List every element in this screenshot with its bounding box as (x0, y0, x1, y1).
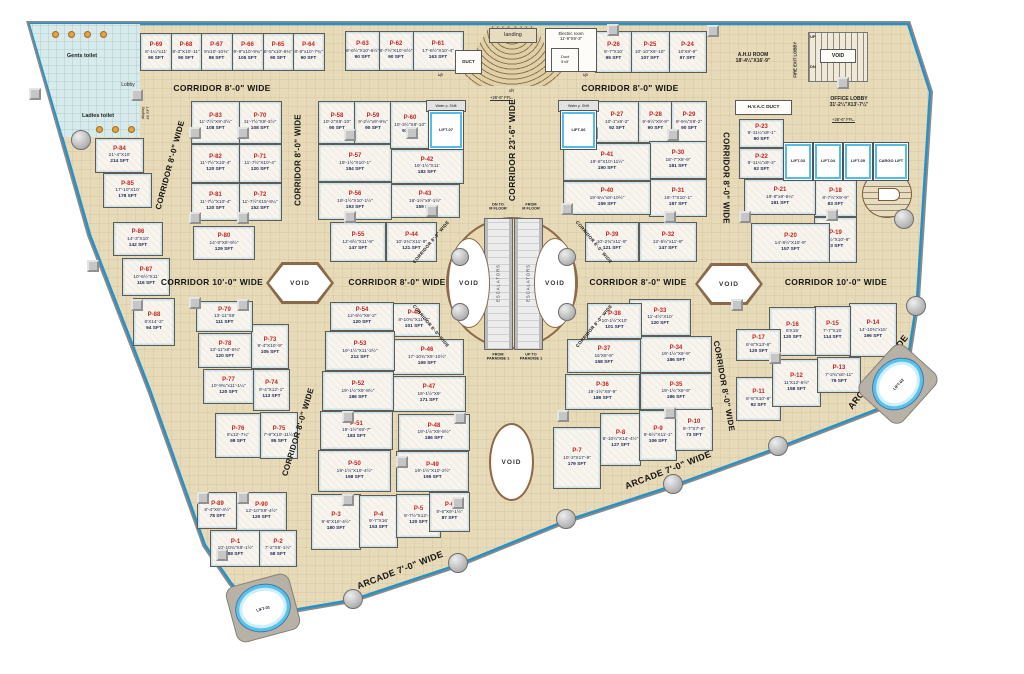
void-label: VOID (719, 281, 739, 288)
column-icon (237, 492, 249, 504)
unit-P-61-id: P-61 (432, 41, 445, 49)
unit-P-53-id: P-53 (354, 341, 367, 349)
unit-P-1-sft: 88 SFT (228, 552, 244, 558)
void-label: VOID (459, 280, 479, 287)
unit-P-78-sft: 120 SFT (216, 354, 234, 360)
unit-P-26-sft: 95 SFT (606, 56, 622, 62)
edge-column-icon (556, 509, 576, 529)
unit-P-71-sft: 120 SFT (251, 167, 269, 173)
unit-P-66-sft: 105 SFT (238, 56, 256, 62)
toilet-fixture-icon (112, 126, 119, 133)
escalator-from-paradise-label: FROM PARADISE 1 (480, 353, 516, 362)
escalator-dn-to-m-floor-label: DN TO M FLOOR (480, 203, 516, 212)
unit-P-58-sft: 90 SFT (329, 126, 345, 132)
toilet-fixture-icon (68, 31, 75, 38)
column-icon (344, 129, 356, 141)
unit-P-33-sft: 120 SFT (651, 321, 669, 327)
unit-P-69-id: P-69 (150, 42, 163, 50)
unit-P-59-sft: 90 SFT (365, 126, 381, 132)
unit-P-20: P-2014'-8½"X10'-9"157 SFT (751, 223, 830, 263)
stair-up-label: UP (810, 34, 816, 39)
unit-P-35-sft: 186 SFT (667, 395, 685, 401)
unit-P-68-id: P-68 (180, 42, 193, 50)
landing-label: landing (489, 28, 537, 43)
unit-P-51: P-5119'-1½"X9'-7"183 SFT (320, 411, 393, 450)
unit-P-23-sft: 90 SFT (754, 137, 770, 143)
unit-P-63-sft: 90 SFT (355, 55, 371, 61)
unit-P-56-id: P-56 (349, 191, 362, 199)
column-icon (29, 88, 41, 100)
unit-P-54: P-5412'-5½"X9'-2"120 SFT (330, 302, 394, 331)
unit-P-32-sft: 147 SFT (659, 246, 677, 252)
unit-P-27-sft: 92 SFT (609, 126, 625, 132)
unit-P-46: P-4617'-10¾"X9'-10½"169 SFT (390, 339, 464, 375)
lobby-label: Lobby (113, 82, 143, 88)
unit-P-45-sft: 101 SFT (405, 324, 423, 330)
unit-P-29-sft: 90 SFT (681, 126, 697, 132)
duct-box: DUCT (455, 50, 482, 74)
unit-P-22-sft: 92 SFT (754, 167, 770, 173)
unit-P-18-sft: 83 SFT (828, 202, 844, 208)
unit-P-76-sft: 98 SFT (230, 439, 246, 445)
unit-P-84-sft: 214 SFT (110, 159, 128, 165)
stair-dn-label: DN (810, 64, 816, 69)
unit-P-47-sft: 171 SFT (420, 398, 438, 404)
unit-P-38-sft: 101 SFT (605, 325, 623, 331)
unit-P-63: P-638'-6½"X10'-6½"90 SFT (345, 31, 380, 71)
unit-P-73: P-739'-4"X10'-9"105 SFT (251, 324, 289, 369)
column-icon (344, 211, 356, 223)
unit-P-13-id: P-13 (833, 365, 846, 373)
unit-P-12: P-1211'X12'-8½"158 SFT (772, 359, 821, 407)
corridor-label: CORRIDOR 8'-0" WIDE (722, 132, 731, 224)
unit-P-21: P-2118'-8"x9'-8¼"181 SFT (744, 179, 816, 215)
unit-P-82: P-8211'-7½"X10'-4"120 SFT (191, 144, 240, 183)
unit-P-30-sft: 181 SFT (669, 164, 687, 170)
edge-column-icon (343, 589, 363, 609)
unit-P-55-sft: 147 SFT (349, 246, 367, 252)
corridor-label: CORRIDOR 8'-0" WIDE (294, 114, 303, 206)
column-icon (739, 211, 751, 223)
unit-P-34: P-3419'-1½"X9'-9"186 SFT (640, 336, 712, 373)
stair-void-label: VOID (820, 49, 856, 63)
unit-P-74-sft: 113 SFT (262, 394, 280, 400)
unit-P-86-id: P-86 (132, 229, 145, 237)
unit-P-40-sft: 159 SFT (598, 202, 616, 208)
unit-P-37-id: P-37 (598, 346, 611, 354)
column-icon (731, 299, 743, 311)
unit-P-74: P-749'-4"X12'-1"113 SFT (253, 369, 290, 411)
unit-P-57: P-5719'-1½"X10'-1"184 SFT (318, 144, 392, 182)
lift: LIFT-05 (843, 142, 873, 181)
column-icon (237, 212, 249, 224)
column-icon (87, 260, 99, 272)
unit-P-19-id: P-19 (829, 230, 842, 238)
column-icon (216, 549, 228, 561)
gents-toilet-label: Gents toilet (50, 53, 114, 60)
unit-P-40: P-4019'-5¼"x8'-10½"159 SFT (563, 181, 651, 215)
lift: LIFT-07 (428, 110, 464, 150)
unit-P-62-sft: 90 SFT (388, 55, 404, 61)
unit-P-15-id: P-15 (826, 321, 839, 329)
lift: CARGO LIFT (873, 142, 909, 181)
column-icon (667, 129, 679, 141)
corridor-label: CORRIDOR 10'-0" WIDE (161, 277, 263, 287)
unit-P-67: P-679'x10'-10¾"98 SFT (200, 33, 233, 71)
unit-P-57-sft: 184 SFT (346, 167, 364, 173)
escalator-up-to-paradise-label: UP TO PARADISE 1 (513, 353, 549, 362)
corridor-label: CORRIDOR 8'-0" WIDE (173, 83, 270, 93)
unit-P-30: P-3018'-7"X9'-9"181 SFT (649, 141, 707, 179)
unit-P-23: P-239'-11¼"x9'-1"90 SFT (739, 119, 784, 148)
corridor-label: CORRIDOR 8'-0" WIDE (581, 83, 678, 93)
unit-P-36: P-3619'-1½"X9'-9"186 SFT (565, 374, 640, 410)
void-ellipse: VOID (489, 423, 534, 501)
display-label: display 46 SFT (140, 98, 150, 128)
escalators-label: ESCALATORS (496, 264, 501, 302)
unit-P-36-id: P-36 (596, 382, 609, 390)
corridor-label: CORRIDOR 8'-0" WIDE (348, 277, 445, 287)
unit-P-9-sft: 106 SFT (649, 439, 667, 445)
unit-P-55-id: P-55 (352, 232, 365, 240)
unit-P-88-id: P-88 (148, 312, 161, 320)
void-hexagon-inner: VOID (269, 265, 331, 301)
unit-P-32-id: P-32 (662, 232, 675, 240)
column-icon (607, 24, 619, 36)
unit-P-42-sft: 182 SFT (418, 170, 436, 176)
unit-P-85-sft: 178 SFT (118, 194, 136, 200)
unit-P-52-sft: 186 SFT (349, 395, 367, 401)
void-label: VOID (545, 280, 565, 287)
column-icon (131, 89, 143, 101)
corridor-label: CORRIDOR 23'-6" WIDE (507, 99, 517, 201)
unit-P-36-sft: 186 SFT (593, 396, 611, 402)
column-icon (707, 25, 719, 37)
unit-P-43-id: P-43 (419, 191, 432, 199)
unit-P-8-sft: 127 SFT (611, 443, 629, 449)
unit-P-72-id: P-72 (254, 192, 267, 200)
unit-P-24-sft: 97 SFT (680, 56, 696, 62)
unit-P-81-sft: 120 SFT (206, 206, 224, 212)
unit-P-4: P-49'-7"X16'153 SFT (359, 495, 398, 548)
unit-P-53: P-5319'-1½"X11'-2½"212 SFT (325, 331, 395, 371)
unit-P-55: P-5512'-6½"X11'-9"147 SFT (330, 222, 386, 262)
unit-P-62-id: P-62 (390, 41, 403, 49)
unit-P-64: P-648'-6"x10'-7¾"90 SFT (292, 33, 325, 71)
unit-P-31-sft: 187 SFT (669, 202, 687, 208)
unit-P-17-id: P-17 (752, 335, 765, 343)
column-icon (131, 299, 143, 311)
unit-P-21-id: P-21 (774, 187, 787, 195)
unit-P-39-id: P-39 (606, 232, 619, 240)
unit-P-10: P-109'-7"X7'-8"73 SFT (675, 407, 713, 451)
column-icon (454, 412, 466, 424)
unit-P-13-sft: 76 SFT (831, 379, 847, 385)
floor-plan: Gents toilet Ladies toilet Lobby display… (0, 0, 1024, 674)
unit-P-50-sft: 198 SFT (345, 475, 363, 481)
unit-P-24-id: P-24 (681, 42, 694, 50)
unit-P-3-sft: 180 SFT (327, 526, 345, 532)
unit-P-34-sft: 186 SFT (667, 358, 685, 364)
fire-exit-lobby-label: FIRE EXIT LOBBY (792, 44, 797, 78)
unit-P-37-sft: 158 SFT (595, 360, 613, 366)
column-icon (342, 494, 354, 506)
unit-P-5-id: P-5 (414, 506, 423, 514)
ffl-marker: +26'-6" FFL. (490, 95, 513, 101)
corridor-label: CORRIDOR 8'-0" WIDE (589, 277, 686, 287)
stair-up-label: up (583, 72, 588, 77)
unit-P-28-sft: 90 SFT (648, 126, 664, 132)
unit-P-87-sft: 116 SFT (137, 281, 155, 287)
toilet-fixture-icon (52, 31, 59, 38)
unit-P-31-id: P-31 (672, 188, 685, 196)
edge-column-icon (906, 296, 926, 316)
lift: LIFT-03 (783, 142, 813, 181)
unit-P-68: P-688'-3"X10'-11"90 SFT (170, 33, 202, 71)
unit-P-7-id: P-7 (572, 448, 581, 456)
unit-P-82-sft: 120 SFT (206, 167, 224, 173)
edge-column-icon (663, 474, 683, 494)
unit-P-83-sft: 108 SFT (206, 126, 224, 132)
unit-P-7: P-710'-3"X17'-9"179 SFT (553, 427, 601, 489)
column-icon (426, 205, 438, 217)
unit-P-35: P-3519'-1½"X9'-9"186 SFT (640, 373, 712, 410)
column-icon (557, 410, 569, 422)
column-icon (396, 456, 408, 468)
unit-P-28-id: P-28 (649, 112, 662, 120)
unit-P-26-id: P-26 (607, 42, 620, 50)
unit-P-30-id: P-30 (672, 150, 685, 158)
escalator-from-m-floor-label: FROM M FLOOR (513, 203, 549, 212)
unit-P-69: P-698'-1¼"x11'90 SFT (140, 33, 172, 71)
unit-P-41-sft: 190 SFT (598, 166, 616, 172)
unit-P-69-sft: 90 SFT (148, 56, 164, 62)
unit-P-10-id: P-10 (688, 419, 701, 427)
ahu-room-label: A.H.U ROOM 18'-4¼"X16'-9" (712, 52, 794, 65)
unit-P-18-id: P-18 (829, 188, 842, 196)
unit-P-46-id: P-46 (421, 347, 434, 355)
unit-P-68-sft: 90 SFT (178, 56, 194, 62)
unit-P-22: P-229'-11¼"x9'-3"92 SFT (739, 148, 784, 179)
unit-P-2-sft: 58 SFT (270, 552, 286, 558)
electric-duct-box: Duct 5'x5' (551, 48, 579, 72)
spiral-staircase-core (878, 188, 900, 201)
unit-P-76: P-768'x12'-7¼"98 SFT (215, 413, 261, 458)
unit-P-59: P-599'-2½"x9'-9¾"90 SFT (354, 101, 392, 144)
rotunda-column-icon (451, 303, 469, 321)
unit-P-88-sft: 94 SFT (146, 326, 162, 332)
hvac-duct-box: H.V.A.C DUCT (735, 100, 792, 115)
unit-P-79-sft: 111 SFT (216, 320, 234, 326)
unit-P-29-id: P-29 (683, 112, 696, 120)
void-hexagon-inner: VOID (698, 266, 760, 302)
unit-P-86-sft: 142 SFT (129, 243, 147, 249)
unit-P-74-id: P-74 (265, 380, 278, 388)
unit-P-80-id: P-80 (218, 233, 231, 241)
unit-P-73-sft: 105 SFT (261, 350, 279, 356)
unit-P-54-sft: 120 SFT (353, 320, 371, 326)
unit-P-65: P-658'-5"x10'-8¾"90 SFT (262, 33, 294, 71)
lift: LIFT-04 (813, 142, 843, 181)
unit-P-20-sft: 157 SFT (781, 247, 799, 253)
unit-P-4-sft: 153 SFT (369, 525, 387, 531)
unit-P-49-sft: 195 SFT (423, 475, 441, 481)
unit-P-90-sft: 120 SFT (252, 515, 270, 521)
office-lobby-label: OFFICE LOBBY 31'-2¼"X13'-7¼" (806, 96, 892, 109)
unit-P-48-sft: 186 SFT (425, 436, 443, 442)
escalators-label: ESCALATORS (526, 264, 531, 302)
unit-P-66: P-669'-9"x10'-9¾"105 SFT (231, 33, 264, 71)
stair-up-label: up (438, 72, 443, 77)
column-icon (406, 127, 418, 139)
unit-P-11-sft: 92 SFT (751, 403, 767, 409)
edge-column-icon (768, 436, 788, 456)
unit-P-67-id: P-67 (210, 42, 223, 50)
unit-P-66-id: P-66 (241, 42, 254, 50)
unit-P-17-sft: 120 SFT (749, 349, 767, 355)
unit-P-10-sft: 73 SFT (686, 433, 702, 439)
toilet-fixture-icon (100, 31, 107, 38)
unit-P-85: P-8517'-10"X10'178 SFT (103, 173, 152, 208)
unit-P-6-sft: 87 SFT (442, 516, 458, 522)
unit-P-56-sft: 193 SFT (346, 205, 364, 211)
unit-P-71: P-7111'-7½"X10'-4"120 SFT (238, 144, 282, 183)
unit-P-20-id: P-20 (784, 233, 797, 241)
unit-P-77: P-7710'-9¾"x11'-1¼"120 SFT (203, 369, 254, 404)
rotunda-column-icon (451, 248, 469, 266)
unit-P-16-sft: 120 SFT (783, 335, 801, 341)
unit-P-64-sft: 90 SFT (301, 56, 317, 62)
toilet-fixture-icon (128, 126, 135, 133)
unit-P-57-id: P-57 (349, 153, 362, 161)
unit-P-32: P-3212'-6½"x11'-9"147 SFT (639, 222, 697, 262)
unit-P-21-sft: 181 SFT (771, 201, 789, 207)
column-icon (197, 492, 209, 504)
unit-P-47-id: P-47 (423, 384, 436, 392)
unit-P-12-sft: 158 SFT (787, 387, 805, 393)
unit-P-51-sft: 183 SFT (347, 434, 365, 440)
column-icon (561, 203, 573, 215)
edge-column-icon (448, 553, 468, 573)
unit-P-11-id: P-11 (752, 389, 764, 397)
unit-P-60-id: P-60 (404, 115, 417, 123)
unit-P-52: P-5219'-1½"X9'-8½"186 SFT (322, 371, 394, 411)
column-icon (452, 497, 464, 509)
unit-P-78: P-7813'-11"x8'-8¾"120 SFT (198, 333, 252, 368)
unit-P-72-sft: 152 SFT (251, 206, 269, 212)
lift: LIFT-06 (560, 110, 597, 150)
column-icon (189, 127, 201, 139)
rotunda-column-icon (558, 248, 576, 266)
unit-P-14-sft: 196 SFT (864, 334, 882, 340)
unit-P-65-sft: 90 SFT (270, 56, 286, 62)
unit-P-81-id: P-81 (209, 192, 222, 200)
unit-P-65-id: P-65 (272, 42, 285, 50)
unit-P-26: P-269'-7"X10'95 SFT (595, 31, 632, 73)
edge-column-icon (71, 130, 91, 150)
unit-P-38-id: P-38 (608, 311, 621, 319)
unit-P-40-id: P-40 (601, 188, 614, 196)
ffl-marker: +26'-6" FFL. (832, 117, 855, 123)
unit-P-52-id: P-52 (352, 381, 365, 389)
unit-P-14-id: P-14 (867, 320, 880, 328)
column-icon (769, 352, 781, 364)
unit-P-86: P-8614'-3"X10'142 SFT (113, 222, 163, 256)
void-label: VOID (502, 459, 522, 466)
unit-P-43: P-4318'-1½"x9'-1½"159 SFT (390, 184, 460, 218)
unit-P-5-sft: 120 SFT (409, 520, 427, 526)
unit-P-24: P-2410'X9'-9"97 SFT (668, 31, 707, 73)
column-icon (837, 77, 849, 89)
unit-P-89-sft: 78 SFT (210, 514, 226, 520)
unit-P-84: P-8421'-4"X10'214 SFT (95, 138, 144, 173)
unit-P-80: P-8014'-9"X8'-9½"129 SFT (193, 226, 255, 260)
column-icon (189, 297, 201, 309)
edge-column-icon (894, 209, 914, 229)
unit-P-12-id: P-12 (790, 373, 803, 381)
unit-P-15: P-157'-7"X15'114 SFT (814, 306, 851, 356)
toilet-fixture-icon (84, 31, 91, 38)
unit-P-64-id: P-64 (302, 42, 315, 50)
unit-P-53-sft: 212 SFT (351, 355, 369, 361)
unit-P-25-sft: 107 SFT (641, 56, 659, 62)
unit-P-50: P-5019'-1½"X10'-4½"198 SFT (318, 450, 391, 492)
unit-P-87-id: P-87 (140, 267, 153, 275)
void-label: VOID (290, 280, 310, 287)
unit-P-62: P-628'-7½"X10'-5½"90 SFT (378, 31, 414, 71)
column-icon (342, 411, 354, 423)
column-icon (664, 407, 676, 419)
unit-P-31: P-3118'-7"X10'-1"187 SFT (649, 179, 707, 217)
unit-P-8: P-88'-10½"X14'-4½"127 SFT (600, 413, 641, 466)
unit-P-50-id: P-50 (348, 461, 361, 469)
unit-P-13: P-137'-2¾"x8'-11"76 SFT (817, 357, 861, 393)
unit-P-70-sft: 108 SFT (251, 126, 269, 132)
unit-P-44-sft: 121 SFT (402, 246, 420, 252)
unit-P-67-sft: 98 SFT (209, 56, 225, 62)
unit-P-39-sft: 121 SFT (603, 246, 621, 252)
column-icon (826, 209, 838, 221)
unit-P-2: P-27'-2"X8'-1½"58 SFT (259, 530, 297, 567)
unit-P-15-sft: 114 SFT (823, 335, 841, 341)
toilet-fixture-icon (96, 126, 103, 133)
ladies-toilet-label: Ladies toilet (66, 113, 130, 120)
unit-P-7-sft: 179 SFT (568, 462, 586, 468)
unit-P-80-sft: 129 SFT (215, 247, 233, 253)
unit-P-25: P-2510'-10"X9'-10"107 SFT (630, 31, 670, 73)
unit-P-25-id: P-25 (644, 42, 657, 50)
unit-P-27: P-2710'-1"x9'-2"92 SFT (594, 101, 640, 143)
unit-P-77-sft: 120 SFT (219, 390, 237, 396)
corridor-label: CORRIDOR 10'-0" WIDE (785, 277, 887, 287)
column-icon (237, 127, 249, 139)
unit-P-27-id: P-27 (611, 112, 624, 120)
unit-P-60: P-6010'-3½"X8'-10"91 SFT (390, 101, 430, 149)
unit-P-75-sft: 85 SFT (271, 439, 287, 445)
unit-P-61-sft: 163 SFT (429, 55, 447, 61)
unit-P-63-id: P-63 (356, 41, 369, 49)
unit-P-3-id: P-3 (331, 512, 340, 520)
stair-dn-label: dn (509, 88, 514, 93)
unit-P-46-sft: 169 SFT (418, 361, 436, 367)
unit-P-41-id: P-41 (601, 152, 614, 160)
unit-P-42: P-4219'-1½"X11'182 SFT (390, 149, 464, 184)
unit-P-47: P-4719'-1½"X9'171 SFT (392, 376, 466, 412)
column-icon (664, 211, 676, 223)
column-icon (189, 212, 201, 224)
unit-P-44-id: P-44 (405, 232, 418, 240)
column-icon (237, 299, 249, 311)
